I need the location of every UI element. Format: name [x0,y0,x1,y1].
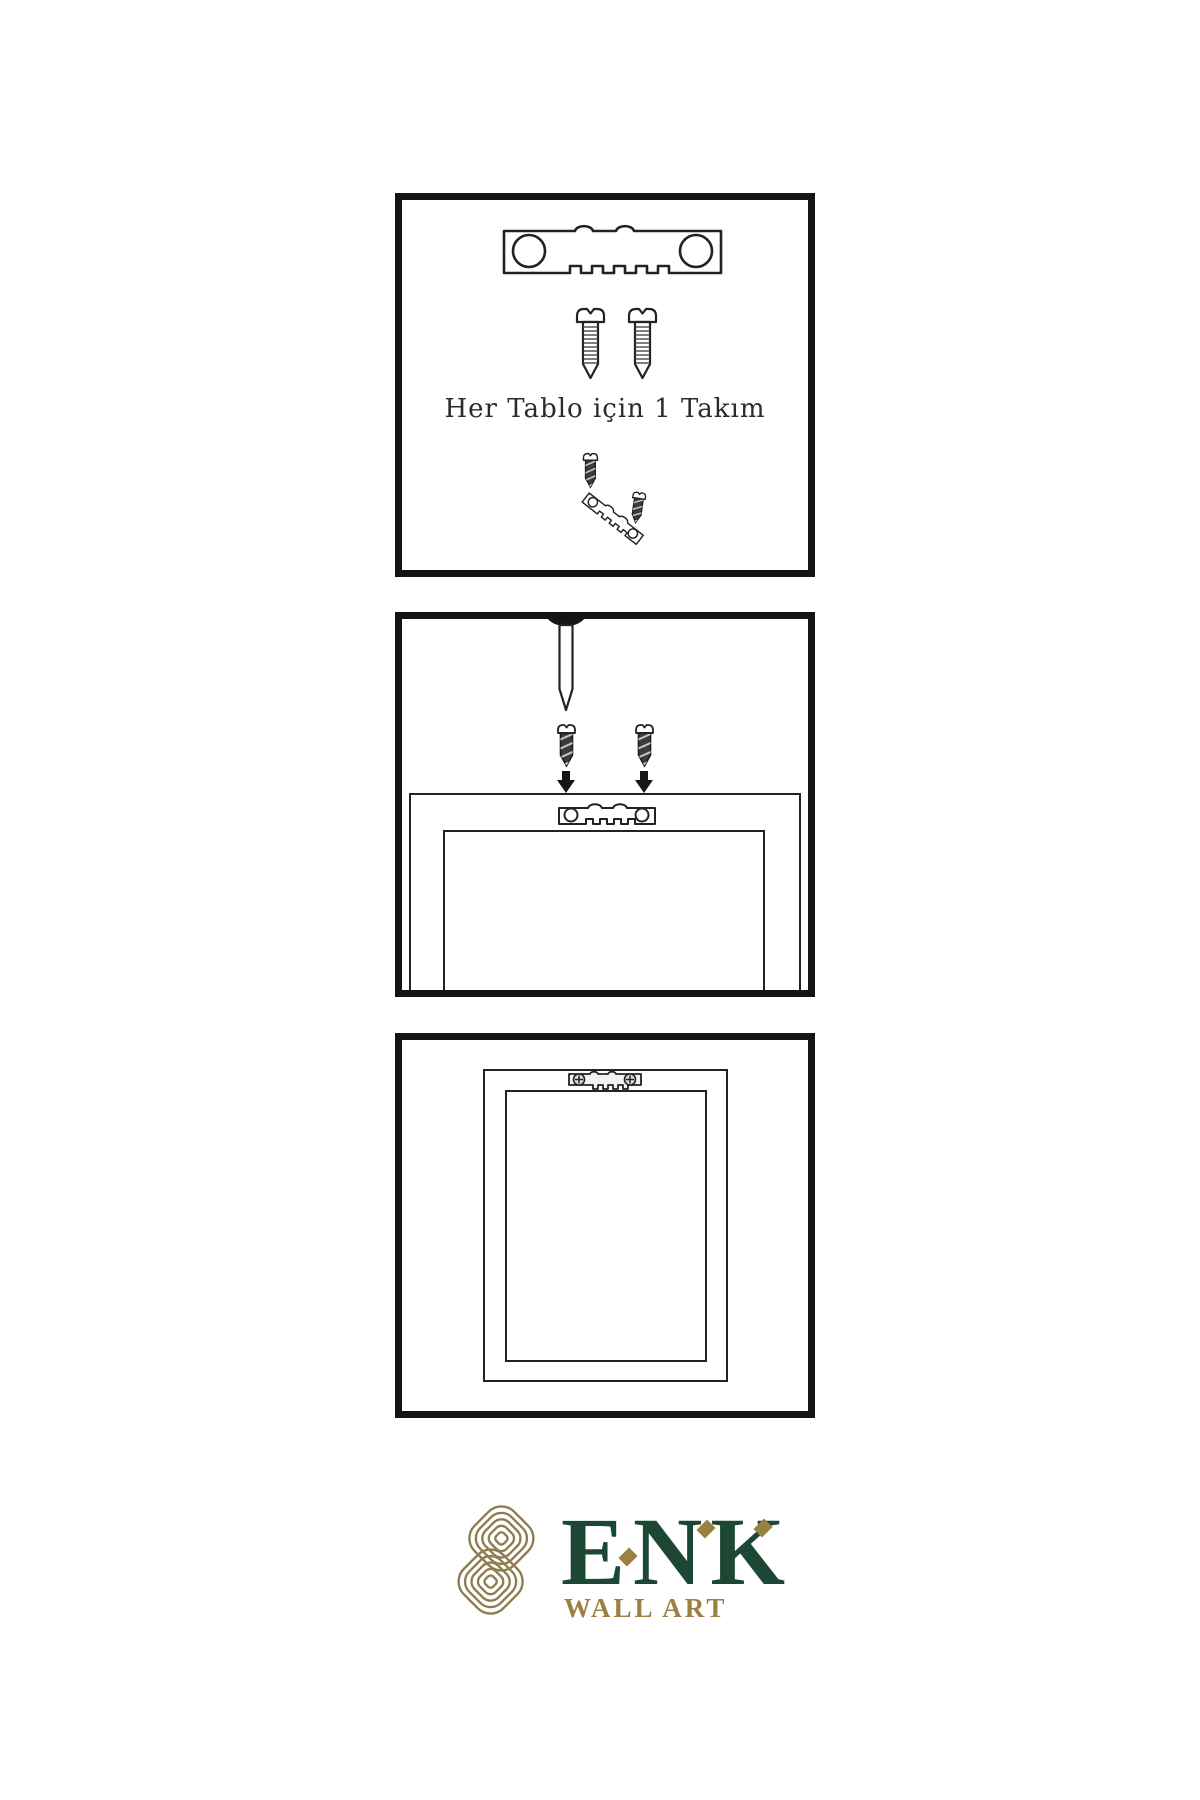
brand-subtitle: WALL ART [564,1595,727,1622]
screw-icon [625,306,660,382]
panel-kit-contents: Her Tablo için 1 Takım [395,193,815,577]
brand-wordmark: ENK [561,1504,793,1600]
sawtooth-hanger-icon [495,224,730,278]
screw-icon [573,306,608,382]
screw-into-tilted-hanger-icon [572,452,662,552]
instruction-sheet: Her Tablo için 1 Takım [0,0,1200,1800]
interlaced-knot-icon [433,1491,559,1629]
frame-front-inner-outline [505,1090,707,1362]
down-arrow-icon [557,771,575,793]
dark-screw-icon [633,723,656,768]
panel-attach-hanger [395,612,815,997]
dark-screw-icon [555,723,578,768]
frame-back-inner-outline [443,830,765,997]
kit-caption: Her Tablo için 1 Takım [402,394,808,424]
sawtooth-hanger-icon [555,802,659,828]
down-arrow-icon [635,771,653,793]
mounted-sawtooth-hanger-icon [566,1070,644,1092]
wall-nail-icon [543,613,589,719]
panel-hang-frame [395,1033,815,1418]
